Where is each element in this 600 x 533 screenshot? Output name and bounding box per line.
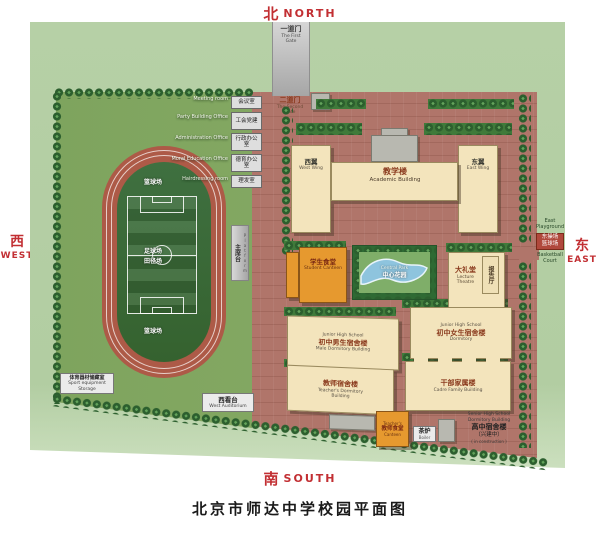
- student-canteen-label: 学生食堂 Student Canteen: [299, 258, 347, 272]
- office-box: 德育办公室: [231, 154, 262, 172]
- teacher-dormitory: 教师宿舍楼 Teacher's Dormitory Building: [287, 365, 394, 416]
- east-playground-labels: East Playground 东操场 篮球场 Basketball Court: [534, 218, 566, 264]
- compass-south-zh: 南: [264, 468, 279, 489]
- theatre-annex: 报告厅: [482, 256, 499, 294]
- compass-west: 西 WEST: [2, 234, 32, 262]
- office-en-label: Meeting room: [148, 97, 228, 103]
- pitch-goal-box-north: [152, 196, 172, 203]
- hedge-entrance-left: [296, 123, 362, 135]
- equipment-storage-label: 体育器材储藏室 Sport equipment Storage: [60, 373, 114, 394]
- entrance-hall: [371, 135, 418, 162]
- hedge-campus-north-left: [316, 99, 366, 109]
- office-en-label: Moral Education Office: [148, 157, 228, 163]
- tree-row-west-border: [52, 92, 63, 404]
- east-playground-box: 东操场 篮球场: [536, 233, 564, 250]
- office-box: 工会党建: [231, 112, 262, 130]
- tree-row-east-border-upper: [518, 94, 531, 244]
- hedge-campus-north-right: [428, 99, 514, 109]
- compass-west-en: WEST: [1, 251, 34, 262]
- female-dormitory: Junior High School 初中女生宿舍楼 Dormitory: [410, 307, 512, 359]
- campus-map: 北 NORTH 西 WEST 东 EAST 南 SOUTH 一道门 The Fi…: [0, 0, 600, 533]
- cadre-family-building: 干部家属楼 Cadre Family Building: [405, 361, 511, 411]
- office-en-label: Party Building Office: [148, 115, 228, 121]
- theatre-label: 大礼堂 Lecture Theatre: [449, 266, 482, 286]
- office-en-label: Administration Office: [148, 136, 228, 142]
- senior-dorm-label: Senior High School Dormitory Building 高中…: [449, 412, 529, 444]
- male-dormitory: Junior High School 初中男生宿舍楼 Male Dormitor…: [287, 316, 399, 371]
- platform-rostrum: 主席台 Platform: [231, 225, 249, 281]
- compass-south: 南 SOUTH: [0, 468, 600, 489]
- student-canteen-annex: [286, 252, 299, 298]
- compass-north-zh: 北: [263, 3, 278, 24]
- field-center-label: 足球场 田径场: [128, 248, 178, 265]
- hedge-entrance-right: [424, 123, 512, 135]
- office-box: 会议室: [231, 96, 262, 109]
- garden-label: Central Park 中心花园: [353, 246, 436, 299]
- west-wing-label: 西翼 West Wing: [291, 158, 331, 172]
- west-stand-label: 西看台 West Auditorium: [202, 393, 254, 412]
- hedge-male-dorm: [284, 307, 396, 316]
- hedge-theatre-north: [446, 243, 512, 252]
- boiler-label: 茶炉 Boiler: [413, 426, 436, 442]
- east-wing-label: 东翼 East Wing: [458, 158, 498, 172]
- central-garden: Central Park 中心花园: [352, 245, 437, 300]
- cadre-roof-teeth: [414, 358, 502, 363]
- compass-east-en: EAST: [567, 255, 597, 266]
- office-box: 行政办公室: [231, 133, 262, 151]
- student-canteen: [299, 247, 347, 303]
- compass-north-en: NORTH: [283, 7, 336, 20]
- map-title: 北京市师达中学校园平面图: [0, 498, 600, 519]
- office-en-label: Hairdressing room: [148, 177, 228, 183]
- first-gate-label: 一道门 The First Gate: [272, 25, 310, 45]
- compass-east: 东 EAST: [566, 238, 598, 266]
- compass-north: 北 NORTH: [0, 3, 600, 24]
- compass-east-zh: 东: [575, 238, 589, 255]
- compass-south-en: SOUTH: [284, 472, 337, 485]
- academic-label: 教学楼 Academic Building: [340, 167, 450, 184]
- south-court-label: 篮球场: [128, 326, 178, 335]
- office-box: 理发室: [231, 175, 262, 188]
- utility-building: [329, 414, 375, 431]
- compass-west-zh: 西: [10, 234, 24, 251]
- teacher-canteen: Teacher's 教师食堂 Canteen: [376, 411, 409, 447]
- pitch-goal-box-south: [152, 307, 172, 314]
